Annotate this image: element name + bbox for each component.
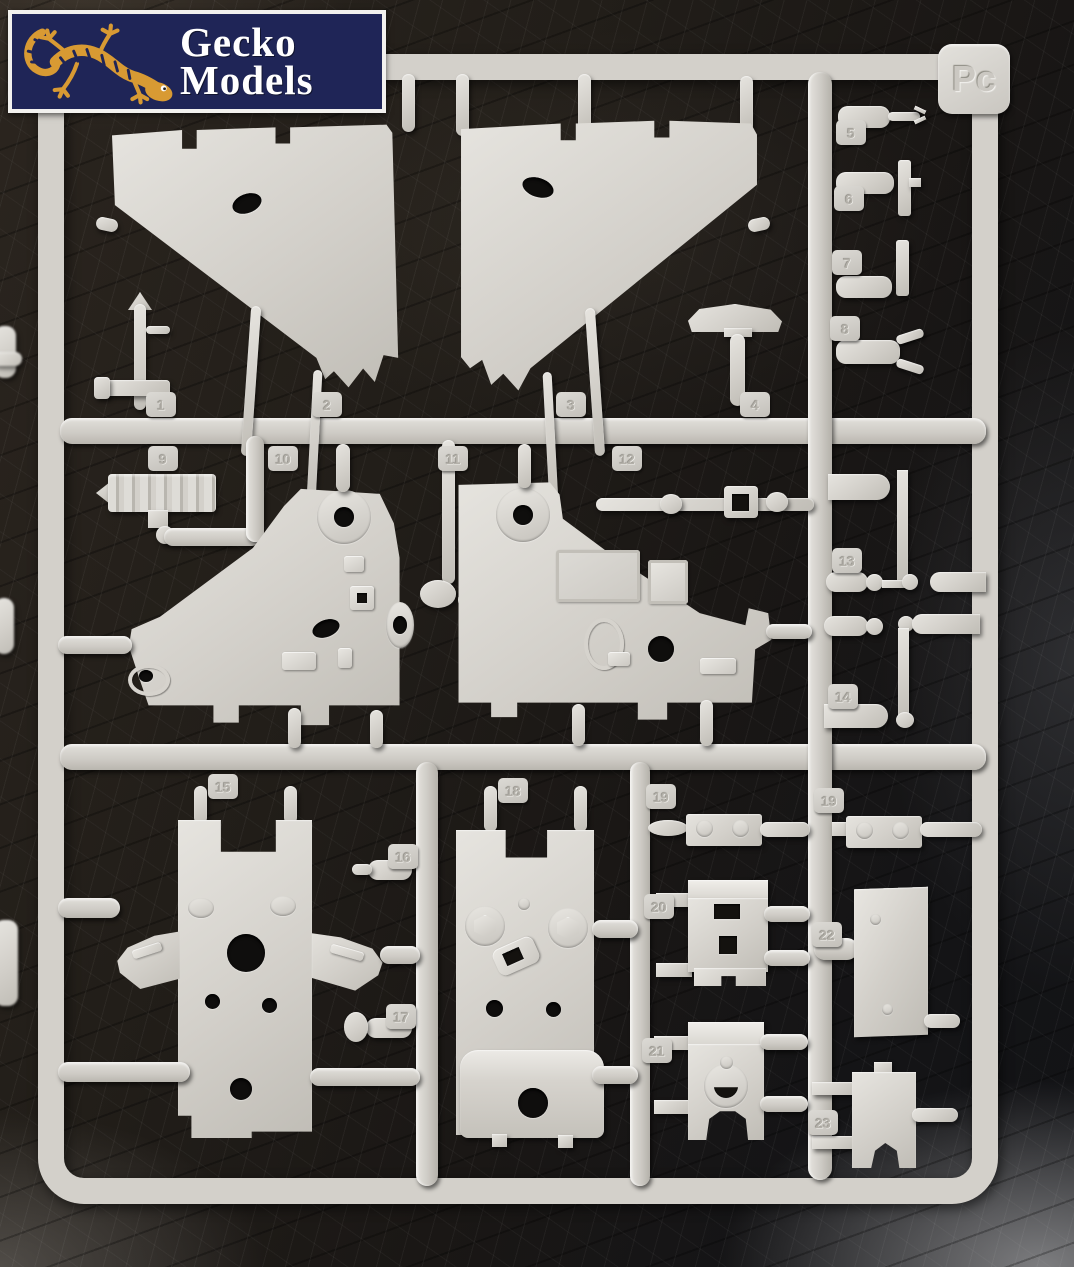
part-tag-4: 4 [740, 392, 770, 417]
runner-horizontal-lower [60, 744, 986, 770]
tag-number: 5 [847, 125, 855, 141]
gate-pin [518, 444, 531, 488]
gate-bar [924, 1014, 960, 1028]
edge-sprue-stub [0, 352, 22, 366]
gate-ball [896, 712, 914, 728]
part-ball [866, 618, 883, 635]
trail-eye-hole [139, 670, 153, 682]
part-tag-9: 9 [148, 446, 178, 471]
part-tag-19b: 19 [814, 788, 844, 813]
frame-panel [556, 550, 640, 602]
tag-number: 9 [159, 451, 167, 467]
logo-wordmark: Gecko Models [180, 24, 314, 99]
part-16-tip [352, 864, 372, 875]
part-tag-12: 12 [612, 446, 642, 471]
gate-bar [760, 1096, 808, 1112]
part-tag-19: 19 [646, 784, 676, 809]
part-tag-16: 16 [388, 844, 418, 869]
part-17-cap [344, 1012, 368, 1042]
frame-panel [648, 560, 688, 604]
tag-number: 19 [653, 789, 669, 805]
plate-boss [270, 896, 296, 916]
tag-number: 4 [751, 397, 759, 413]
plate-center-hole [227, 934, 265, 972]
part-rod [912, 614, 980, 634]
sprue-label-text: Pc [952, 58, 996, 100]
gate-bar [764, 906, 810, 922]
tag-number: 23 [815, 1115, 831, 1131]
part-rod [828, 474, 890, 500]
photo-model-sprue: Pc [0, 0, 1074, 1267]
part-tag-8: 8 [830, 316, 860, 341]
part-13-rod [930, 572, 986, 592]
tag-number: 11 [446, 451, 461, 467]
part-22-panel [854, 887, 928, 1038]
part-tag-17: 17 [386, 1004, 416, 1029]
gate-pin [572, 704, 585, 746]
tag-number: 12 [619, 451, 635, 467]
gate-ball [648, 820, 688, 836]
plate-boss [188, 898, 214, 918]
part-13-ball [866, 574, 883, 591]
link-boss [892, 822, 909, 839]
part-tag-20: 20 [644, 894, 674, 919]
plate-hole [230, 1078, 252, 1100]
gate-bar [654, 1100, 692, 1114]
boss-hole [393, 616, 407, 634]
gate-pin [484, 786, 497, 832]
part-tag-14: 14 [828, 684, 858, 709]
gate-ball [766, 492, 788, 512]
gate-bar-vertical [897, 470, 908, 580]
frame-bracket [282, 652, 316, 670]
tag-number: 18 [505, 783, 521, 799]
gate-bar [764, 950, 810, 966]
part-tag-2: 2 [312, 392, 342, 417]
panel-rivet [870, 914, 881, 925]
part-pin-7 [836, 276, 892, 298]
tag-number: 19 [821, 793, 837, 809]
fender-tab [492, 1134, 507, 1147]
runner-horizontal-upper [60, 418, 986, 444]
link-boss [856, 822, 873, 839]
part-13-ball [902, 574, 918, 590]
part-tag-23: 23 [808, 1110, 838, 1135]
sprue-label-pc: Pc [938, 44, 1010, 114]
gate-bar [58, 1062, 190, 1082]
part-tag-11: 11 [438, 446, 468, 471]
gate-bar [912, 1108, 958, 1122]
gate-bar [760, 1034, 808, 1050]
part-tag-15: 15 [208, 774, 238, 799]
gate-pin [456, 74, 469, 136]
tag-number: 8 [841, 321, 849, 337]
part-pin-8 [836, 340, 900, 364]
tag-number: 3 [567, 397, 575, 413]
part-20-slot [719, 936, 737, 954]
gate-bar [380, 946, 420, 964]
gate-pin [700, 700, 713, 746]
gate-bar [656, 963, 692, 977]
gate-pin [284, 786, 297, 824]
fender-tab [558, 1135, 573, 1148]
tag-number: 21 [649, 1043, 665, 1059]
gate-bar [920, 822, 982, 837]
logo-text-models: Models [180, 62, 314, 100]
part-rod [824, 616, 868, 636]
part-21-top [688, 1022, 764, 1046]
part-20-slot [714, 904, 740, 919]
tag-number: 1 [157, 397, 165, 413]
part-spindle-pin [146, 326, 170, 334]
part-tag-1: 1 [146, 392, 176, 417]
part-pin-7-blade [896, 240, 909, 296]
part-pin-6-nub [909, 178, 921, 187]
tag-number: 16 [395, 849, 411, 865]
tag-number: 17 [393, 1009, 409, 1025]
gate-bar [592, 920, 638, 938]
part-tag-18: 18 [498, 778, 528, 803]
part-tag-10: 10 [268, 446, 298, 471]
part-13-rod [826, 572, 868, 592]
clevis-square-hole [732, 494, 749, 511]
plate-hole [262, 998, 277, 1013]
gate-bar-vertical [898, 628, 909, 720]
plate-hole [205, 994, 220, 1009]
boss-hole [334, 507, 354, 527]
frame-bracket [700, 658, 736, 674]
gate-bar [592, 1066, 638, 1084]
panel-rivet [882, 1004, 893, 1015]
gecko-models-logo: Gecko Models [8, 10, 386, 113]
part-tag-13: 13 [832, 548, 862, 573]
part-tag-21: 21 [642, 1038, 672, 1063]
frame-pad [344, 556, 364, 572]
gate-blob [420, 580, 456, 608]
part-tag-3: 3 [556, 392, 586, 417]
gate-bar [812, 1136, 856, 1149]
tag-number: 7 [843, 255, 851, 271]
gate-bar [58, 898, 120, 918]
frame-hole [648, 636, 674, 662]
edge-sprue-stub [0, 598, 14, 654]
runner-elbow-vertical [246, 436, 264, 542]
runner-vertical-mid-right [630, 762, 650, 1186]
part-crossbar-knob [94, 377, 110, 399]
part-tag-22: 22 [812, 922, 842, 947]
gate-bar [58, 636, 132, 654]
part-pin-6-blade [898, 160, 911, 216]
gecko-icon [12, 14, 180, 109]
gate-pin [402, 74, 415, 132]
gate-ball [660, 494, 682, 514]
tag-number: 22 [819, 927, 835, 943]
gate-bar [310, 1068, 420, 1086]
plate-hole [486, 1000, 503, 1017]
gate-pin [288, 708, 301, 748]
gate-pin [336, 444, 350, 492]
tag-number: 13 [839, 553, 855, 569]
tag-number: 20 [651, 899, 667, 915]
part-20-top [688, 880, 768, 900]
gate-bar [760, 822, 810, 837]
runner-vertical-center [416, 762, 438, 1186]
gate-bar [812, 1082, 856, 1095]
boss-hole [513, 505, 533, 525]
part-winch-block [108, 474, 216, 512]
gate-pin [574, 786, 587, 832]
plate-rivet [518, 898, 530, 910]
fender-hole [518, 1088, 548, 1118]
tag-number: 10 [275, 451, 291, 467]
link-boss [732, 820, 749, 837]
part-tag-6: 6 [834, 186, 864, 211]
gate-pin [194, 786, 207, 824]
pad-hole [357, 593, 367, 603]
gate-pin [370, 710, 383, 748]
frame-bracket [338, 648, 352, 668]
link-boss [696, 820, 713, 837]
tag-number: 6 [845, 191, 853, 207]
part-21-knob [720, 1056, 733, 1069]
gate-bar [766, 624, 812, 639]
plate-hole [546, 1002, 561, 1017]
part-tag-7: 7 [832, 250, 862, 275]
frame-bracket [608, 652, 630, 666]
part-tag-5: 5 [836, 120, 866, 145]
tag-number: 15 [215, 779, 231, 795]
logo-text-gecko: Gecko [180, 24, 314, 62]
part-21-cap-ring [704, 1064, 748, 1108]
tag-number: 2 [323, 397, 331, 413]
edge-sprue-stub [0, 920, 18, 1006]
tag-number: 14 [835, 689, 851, 705]
